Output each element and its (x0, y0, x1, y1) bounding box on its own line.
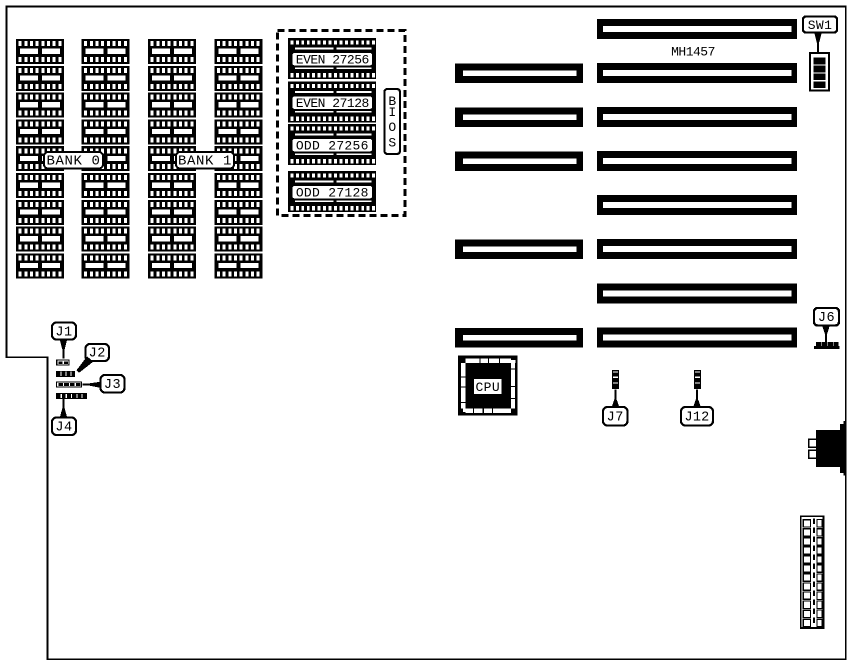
svg-text:EVEN 27128: EVEN 27128 (296, 96, 369, 111)
svg-text:J3: J3 (104, 378, 121, 393)
svg-text:S: S (388, 136, 396, 151)
svg-text:J6: J6 (818, 311, 835, 326)
svg-text:MH1457: MH1457 (671, 45, 715, 60)
svg-text:J7: J7 (607, 410, 624, 425)
svg-text:EVEN 27256: EVEN 27256 (296, 52, 369, 67)
svg-text:J1: J1 (55, 325, 72, 340)
svg-text:BANK 1: BANK 1 (178, 154, 232, 170)
svg-text:J2: J2 (89, 347, 106, 362)
svg-text:ODD 27128: ODD 27128 (296, 185, 369, 200)
svg-text:ODD 27256: ODD 27256 (296, 138, 369, 153)
svg-text:I: I (388, 105, 396, 120)
svg-text:O: O (388, 120, 396, 135)
svg-text:SW1: SW1 (808, 18, 833, 33)
svg-text:J12: J12 (685, 410, 710, 425)
svg-text:CPU: CPU (475, 380, 500, 395)
svg-text:J4: J4 (55, 421, 72, 436)
svg-text:BANK 0: BANK 0 (46, 154, 100, 170)
